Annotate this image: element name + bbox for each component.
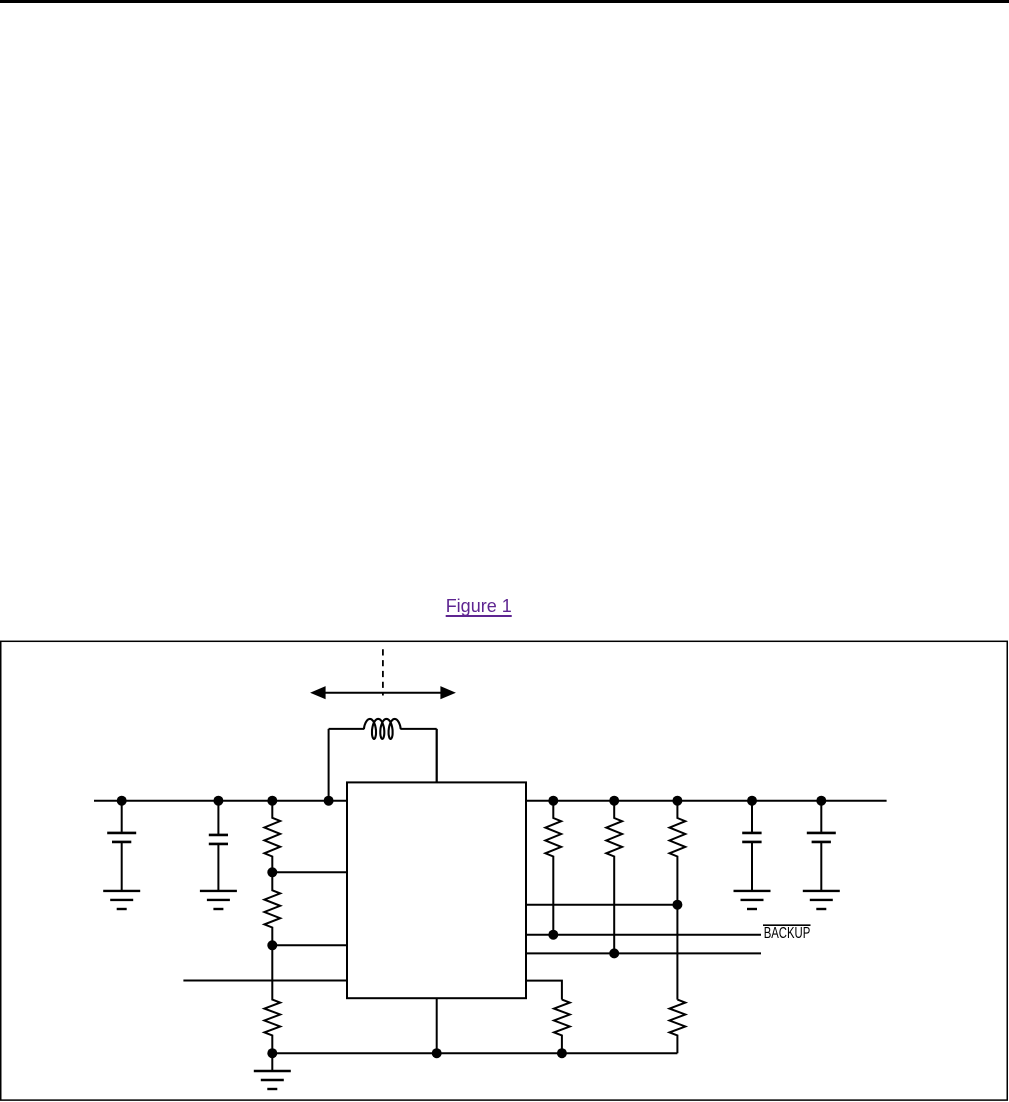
svg-text:BACKUP: BACKUP [764, 925, 811, 942]
